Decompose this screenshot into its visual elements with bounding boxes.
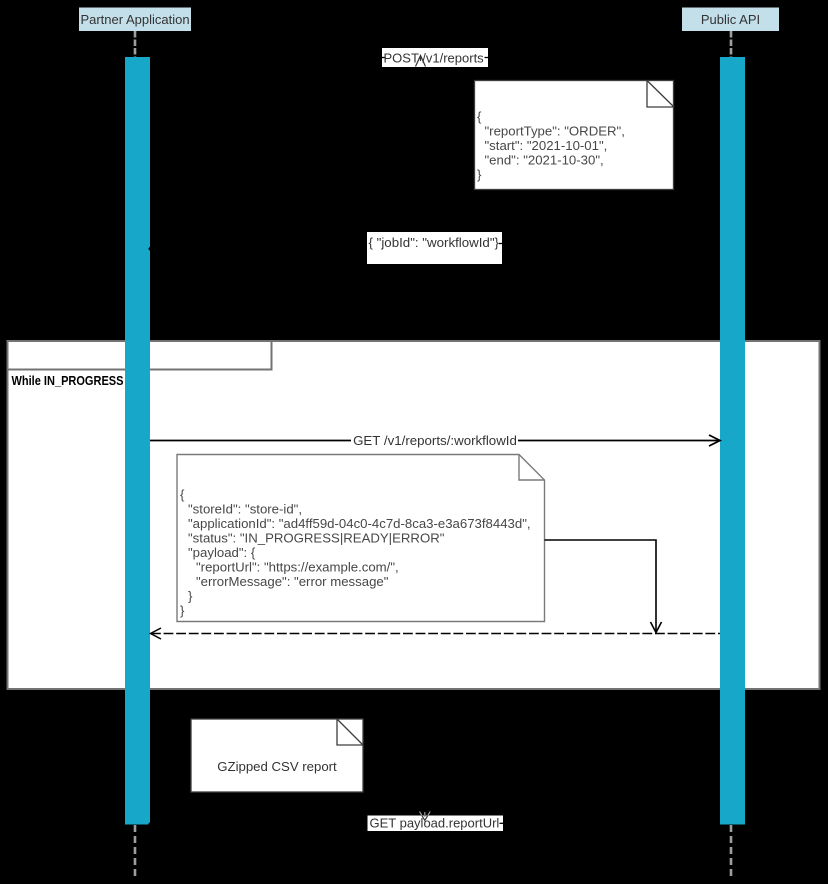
svg-text:Partner Application: Partner Application <box>80 12 189 27</box>
svg-text:"start": "2021-10-01",: "start": "2021-10-01", <box>485 138 608 153</box>
svg-text:"status": "IN_PROGRESS|READY|E: "status": "IN_PROGRESS|READY|ERROR" <box>188 531 445 546</box>
svg-text:"reportUrl": "https://example.: "reportUrl": "https://example.com/", <box>196 560 399 575</box>
svg-text:"applicationId": "ad4ff59d-04c: "applicationId": "ad4ff59d-04c0-4c7d-8ca… <box>188 516 531 531</box>
svg-text:{: { <box>180 487 185 502</box>
svg-text:}: } <box>180 603 185 618</box>
svg-text:"errorMessage": "error message: "errorMessage": "error message" <box>196 574 389 589</box>
svg-text:Public API: Public API <box>701 12 760 27</box>
svg-text:"reportType": "ORDER",: "reportType": "ORDER", <box>485 124 625 139</box>
svg-text:"end": "2021-10-30",: "end": "2021-10-30", <box>485 153 604 168</box>
svg-text:"payload": {: "payload": { <box>188 545 256 560</box>
svg-text:{: { <box>477 109 482 124</box>
svg-text:While IN_PROGRESS: While IN_PROGRESS <box>12 373 124 388</box>
svg-text:}: } <box>477 167 482 182</box>
svg-text:GET /v1/reports/:workflowId: GET /v1/reports/:workflowId <box>353 433 517 448</box>
svg-text:}: } <box>188 589 193 604</box>
svg-text:{ "jobId": "workflowId"}: { "jobId": "workflowId"} <box>369 235 500 250</box>
svg-text:POST /v1/reports: POST /v1/reports <box>384 51 485 66</box>
svg-text:GET payload.reportUrl: GET payload.reportUrl <box>370 816 500 831</box>
svg-text:GZipped CSV report: GZipped CSV report <box>217 759 337 774</box>
svg-text:"storeId": "store-id",: "storeId": "store-id", <box>188 502 302 517</box>
